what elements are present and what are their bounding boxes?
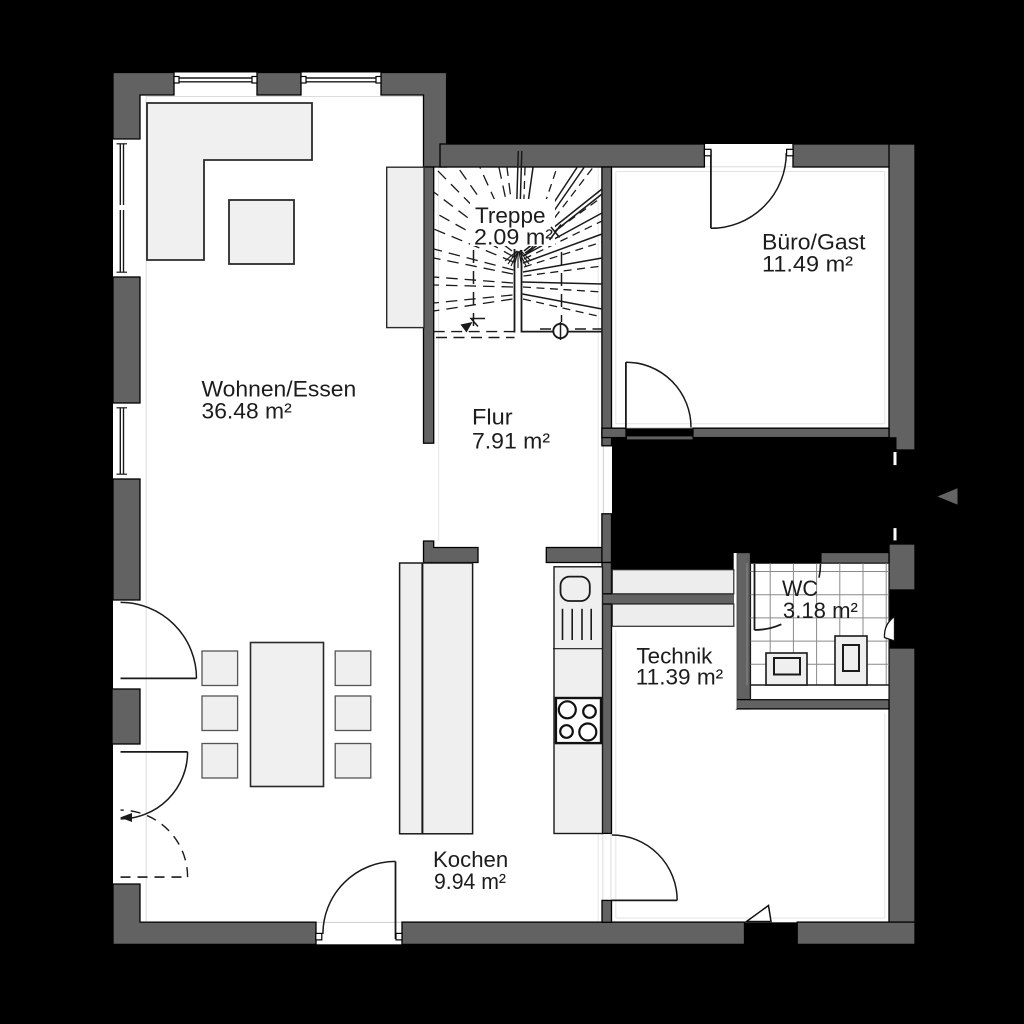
svg-text:3.18 m²: 3.18 m² bbox=[783, 598, 858, 623]
svg-text:36.48 m²: 36.48 m² bbox=[202, 399, 292, 424]
svg-text:11.49 m²: 11.49 m² bbox=[762, 252, 853, 277]
svg-text:2.09 m²: 2.09 m² bbox=[474, 225, 553, 250]
svg-text:9.94 m²: 9.94 m² bbox=[434, 869, 506, 894]
svg-text:Flur: Flur bbox=[472, 405, 513, 430]
svg-text:11.39 m²: 11.39 m² bbox=[636, 665, 723, 690]
svg-text:7.91 m²: 7.91 m² bbox=[472, 429, 550, 454]
